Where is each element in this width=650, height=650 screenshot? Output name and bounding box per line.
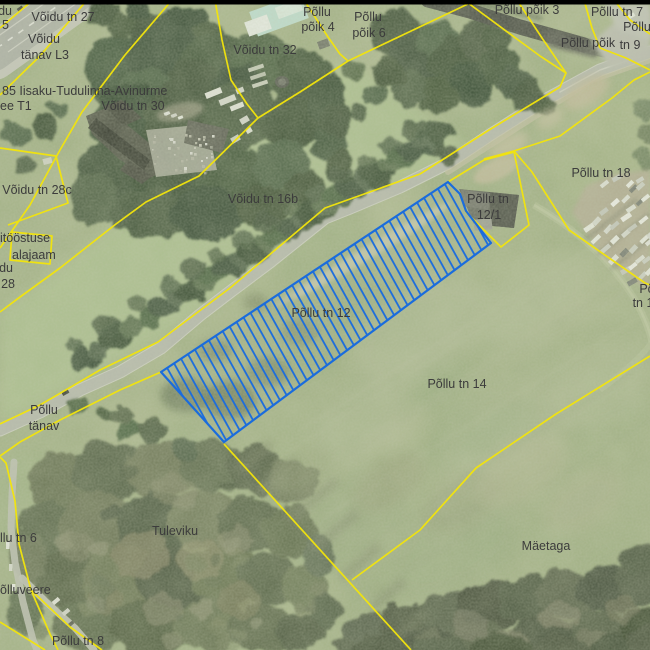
svg-text:85 Iisaku-Tudulinna-Avinurme: 85 Iisaku-Tudulinna-Avinurme xyxy=(2,84,167,98)
svg-text:Põllu tn 12: Põllu tn 12 xyxy=(291,306,350,320)
svg-text:tänav: tänav xyxy=(29,419,60,433)
svg-text:alajaam: alajaam xyxy=(12,248,56,262)
svg-text:Põ: Põ xyxy=(639,282,650,296)
svg-text:Põllu põik 3: Põllu põik 3 xyxy=(495,3,560,17)
svg-text:ee T1: ee T1 xyxy=(0,99,32,113)
svg-text:Tuleviku: Tuleviku xyxy=(152,524,198,538)
svg-text:tn 1: tn 1 xyxy=(633,296,650,310)
svg-text:Põllu tn 18: Põllu tn 18 xyxy=(571,166,630,180)
svg-text:Põllu põik: Põllu põik xyxy=(561,36,616,50)
svg-text:tn 9: tn 9 xyxy=(620,38,641,52)
svg-text:Võidu tn 16b: Võidu tn 16b xyxy=(228,192,298,206)
svg-text:Võidu tn 32: Võidu tn 32 xyxy=(233,43,296,57)
svg-text:põik 4: põik 4 xyxy=(301,20,334,34)
svg-text:Võidu tn 30: Võidu tn 30 xyxy=(101,99,164,113)
svg-text:28: 28 xyxy=(1,277,15,291)
svg-text:tänav L3: tänav L3 xyxy=(21,48,69,62)
svg-text:Võidu: Võidu xyxy=(28,32,60,46)
svg-text:12/1: 12/1 xyxy=(477,208,501,222)
svg-text:Võidu tn 28c: Võidu tn 28c xyxy=(2,183,72,197)
svg-text:5: 5 xyxy=(2,18,9,32)
svg-text:põik 6: põik 6 xyxy=(352,26,385,40)
svg-text:Mäetaga: Mäetaga xyxy=(522,539,571,553)
svg-text:Põllu tn 7: Põllu tn 7 xyxy=(591,5,643,19)
svg-text:Põllu: Põllu xyxy=(354,10,382,24)
svg-text:õlluveere: õlluveere xyxy=(0,583,51,597)
svg-text:llu tn 6: llu tn 6 xyxy=(0,531,37,545)
svg-text:Põllu: Põllu xyxy=(30,403,58,417)
svg-text:itööstuse: itööstuse xyxy=(0,231,50,245)
svg-text:Põllu tn: Põllu tn xyxy=(467,192,509,206)
svg-text:Võidu tn 27: Võidu tn 27 xyxy=(31,10,94,24)
svg-text:Põllu: Põllu xyxy=(303,5,331,19)
svg-text:Põllu tn 14: Põllu tn 14 xyxy=(427,377,486,391)
svg-text:Põllu tn 8: Põllu tn 8 xyxy=(52,634,104,648)
svg-text:du: du xyxy=(0,4,12,18)
svg-text:Põllu: Põllu xyxy=(623,20,650,34)
svg-text:du: du xyxy=(0,261,13,275)
